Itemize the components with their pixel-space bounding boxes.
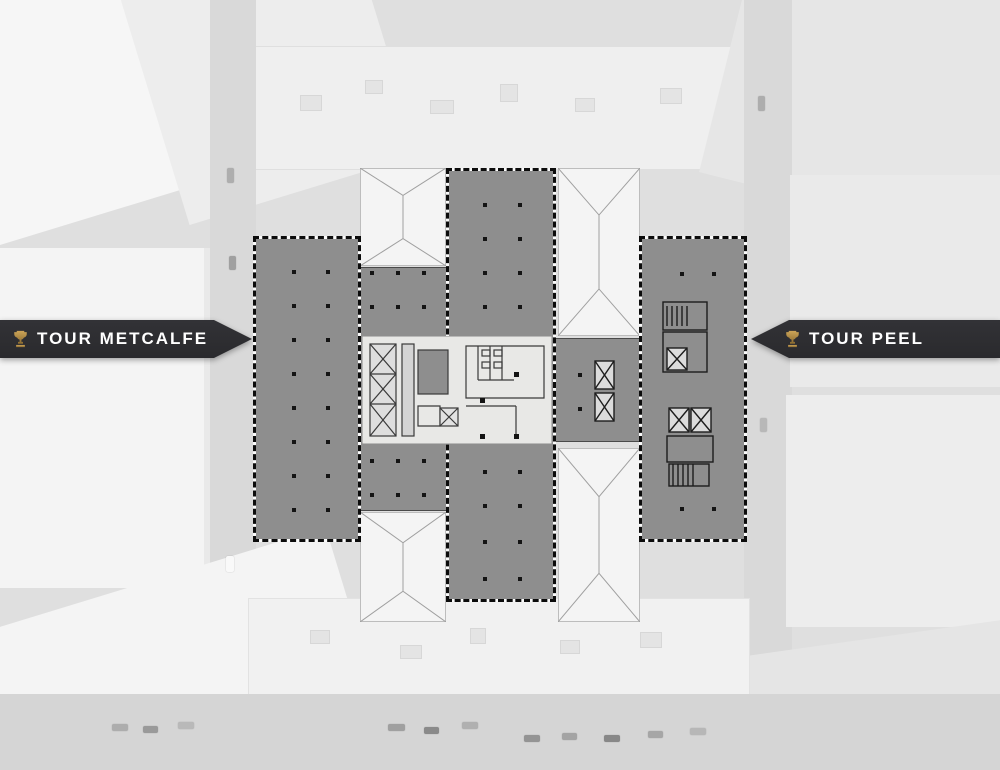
column-dot [396, 459, 400, 463]
column-dot [326, 440, 330, 444]
column-dot [396, 271, 400, 275]
column-dot [292, 372, 296, 376]
column-dot [483, 577, 487, 581]
column-dot [292, 406, 296, 410]
banner-label: TOUR PEEL [809, 329, 924, 349]
column-dot [326, 508, 330, 512]
column-dot [578, 407, 582, 411]
column-dot [292, 304, 296, 308]
tour-metcalfe-banner[interactable]: TOUR METCALFE [0, 320, 252, 358]
column-dot [370, 271, 374, 275]
column-dot [370, 305, 374, 309]
plan-mid-band-left [359, 267, 449, 511]
trophy-icon [785, 329, 800, 349]
column-dot [680, 507, 684, 511]
plan-center-column [446, 168, 556, 602]
column-dot [518, 203, 522, 207]
column-dot [518, 271, 522, 275]
column-dot [422, 271, 426, 275]
column-dot [396, 305, 400, 309]
column-dot [518, 540, 522, 544]
column-dot [518, 305, 522, 309]
column-dot [578, 373, 582, 377]
floor-plan-overlay [0, 0, 1000, 770]
column-dot [396, 493, 400, 497]
trophy-icon [13, 329, 28, 349]
column-dot [422, 493, 426, 497]
column-dot [370, 459, 374, 463]
tour-peel-banner[interactable]: TOUR PEEL [751, 320, 1000, 358]
column-dot [292, 440, 296, 444]
column-dot [292, 474, 296, 478]
column-dot [326, 406, 330, 410]
column-dot [422, 459, 426, 463]
banner-label: TOUR METCALFE [37, 329, 208, 349]
column-dot [326, 304, 330, 308]
column-dot [292, 508, 296, 512]
column-dot [518, 504, 522, 508]
column-dot [483, 470, 487, 474]
column-dot [712, 272, 716, 276]
column-dot [292, 338, 296, 342]
column-dot [518, 577, 522, 581]
column-dot [518, 470, 522, 474]
metcalfe-wing-plan [253, 236, 361, 542]
column-dot [680, 272, 684, 276]
column-dot [326, 474, 330, 478]
column-dot [422, 305, 426, 309]
column-dot [518, 237, 522, 241]
column-dot [326, 270, 330, 274]
column-dot [712, 507, 716, 511]
column-dot [483, 271, 487, 275]
column-dot [483, 540, 487, 544]
column-dot [292, 270, 296, 274]
column-dot [326, 338, 330, 342]
column-dot [483, 237, 487, 241]
column-dot [483, 504, 487, 508]
column-dot [370, 493, 374, 497]
peel-wing-plan [639, 236, 747, 542]
column-dot [326, 372, 330, 376]
column-dot [483, 203, 487, 207]
aerial-plan-view: TOUR METCALFE TOUR PEEL [0, 0, 1000, 770]
column-dot [483, 305, 487, 309]
plan-mid-band-right [552, 338, 642, 442]
